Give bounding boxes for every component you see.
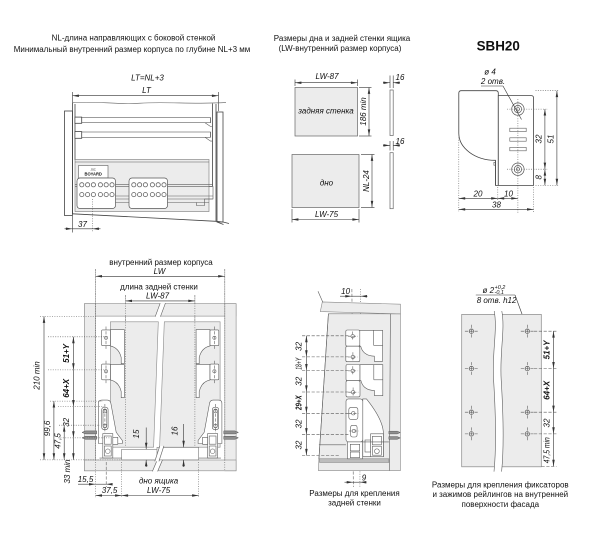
svg-text:32: 32 [542,418,551,427]
svg-text:9: 9 [362,474,367,483]
svg-text:47,5 min: 47,5 min [542,437,551,463]
svg-text:32: 32 [535,134,544,143]
svg-text:Минимальный внутренний размер: Минимальный внутренний размер корпуса по… [14,45,251,54]
svg-text:(LW-внутренний размер корпуса): (LW-внутренний размер корпуса) [279,44,402,53]
svg-text:8: 8 [535,175,544,180]
svg-text:32: 32 [295,440,304,449]
svg-text:16: 16 [396,73,405,82]
svg-text:SBH20: SBH20 [477,38,520,53]
svg-text:51+Y: 51+Y [542,340,551,360]
svg-text:NL-24: NL-24 [362,170,371,192]
svg-text:2 отв.: 2 отв. [480,77,505,86]
svg-text:ø 2: ø 2 [483,286,495,295]
svg-text:51+Y: 51+Y [62,343,71,363]
svg-text:51: 51 [547,135,556,144]
svg-text:BOYARD: BOYARD [85,172,102,177]
svg-text:186 min: 186 min [359,97,368,126]
svg-text:16: 16 [396,137,405,146]
svg-text:задней стенки: задней стенки [328,498,381,507]
svg-text:поверхности фасада: поверхности фасада [462,500,540,509]
svg-text:ø 4: ø 4 [484,68,496,77]
svg-text:29+X: 29+X [295,395,304,411]
svg-text:дно: дно [320,179,334,188]
svg-text:NL-длина направляющих с боково: NL-длина направляющих с боковой стенкой [52,34,216,43]
svg-text:64+X: 64+X [62,378,71,398]
svg-text:99,6: 99,6 [43,420,52,436]
svg-text:64+X: 64+X [542,380,551,400]
svg-text:LT=NL+3: LT=NL+3 [131,74,164,83]
svg-text:Размеры для крепления фиксатор: Размеры для крепления фиксаторов [432,480,569,489]
svg-text:10: 10 [504,189,513,198]
svg-text:10: 10 [341,287,350,296]
svg-text:внутренний размер корпуса: внутренний размер корпуса [109,258,213,267]
svg-text:33 min: 33 min [63,459,72,484]
svg-text:32: 32 [295,341,304,350]
svg-text:15: 15 [132,429,141,438]
svg-text:37,5: 37,5 [102,486,118,495]
svg-text:37: 37 [78,220,87,229]
svg-text:47,5: 47,5 [54,433,63,449]
svg-text:LW-87: LW-87 [315,72,339,81]
svg-text:Размеры дна и задней стенки ящ: Размеры дна и задней стенки ящика [274,34,411,43]
svg-text:LW-75: LW-75 [315,210,339,219]
svg-text:16: 16 [171,426,180,435]
svg-text:18+Y: 18+Y [295,357,304,369]
svg-text:LW: LW [154,267,167,276]
svg-text:8 отв. h12: 8 отв. h12 [477,296,517,305]
svg-text:20: 20 [473,189,483,198]
svg-text:задняя стенка: задняя стенка [297,107,354,116]
svg-text:и зажимов рейлингов на внутрен: и зажимов рейлингов на внутренней [432,490,568,499]
svg-text:38: 38 [492,200,501,209]
svg-text:дно ящика: дно ящика [139,476,179,485]
svg-text:15,5: 15,5 [78,475,94,484]
svg-text:LW-87: LW-87 [146,291,170,300]
svg-text:210 min: 210 min [33,361,42,391]
svg-text:длина задней стенки: длина задней стенки [120,283,198,292]
svg-text:LT: LT [142,86,152,95]
svg-text:Размеры для крепления: Размеры для крепления [309,489,399,498]
svg-text:32: 32 [295,419,304,428]
svg-text:LW-75: LW-75 [147,486,171,495]
svg-text:32: 32 [295,376,304,385]
